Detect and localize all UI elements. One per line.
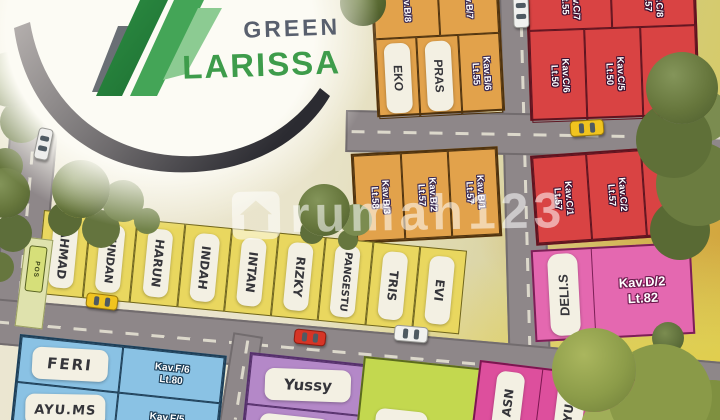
block-b-top: Kav.B/8 Kav.B/7 EKO PRAS Kav.B/6Lt.55 — [371, 0, 505, 117]
owner-sticker: EVI — [424, 255, 455, 325]
lot-deli: DELI.S — [533, 249, 597, 340]
watermark-text: rumah123 — [290, 181, 567, 244]
owner-name: RIZKY — [290, 256, 308, 298]
owner-name: JUNDAN — [102, 233, 120, 284]
lot-rizky: RIZKY — [271, 233, 326, 321]
owner-name: Yussy — [283, 375, 333, 395]
owner-sticker: EKO — [383, 42, 413, 113]
owner-name: INDAH — [195, 245, 213, 291]
owner-name: AYU.MS — [34, 402, 97, 418]
owner-sticker: Yussy — [264, 368, 351, 403]
owner-name: PRAS — [431, 59, 447, 92]
lot-tris: TRIS — [365, 242, 420, 330]
lot-c3: Kav.C/3Lt.58 — [641, 146, 701, 236]
owner-sticker: DELI.S — [547, 253, 581, 336]
lot-label: Kav.F/6Lt.80 — [153, 361, 190, 389]
owner-name: PANGESTU — [337, 251, 354, 312]
lot-label: Kav.C/5Lt.50 — [602, 57, 625, 92]
owner-sticker — [258, 412, 330, 420]
lot-label: Kav.D/2Lt.82 — [618, 274, 666, 308]
owner-sticker: RIZKY — [283, 242, 314, 312]
bush-pink-corner — [652, 322, 684, 354]
lot-pras: PRAS — [417, 35, 462, 117]
block-green — [357, 356, 482, 420]
owner-name: EKO — [390, 65, 405, 91]
siteplan-map: Kav.B/8 Kav.B/7 EKO PRAS Kav.B/6Lt.55 — [0, 0, 720, 420]
car-white-main-road — [393, 325, 428, 344]
owner-name: FERI — [46, 354, 94, 374]
lot-evi: EVI — [412, 246, 467, 334]
lot-b7: Kav.B/7 — [438, 0, 499, 36]
guard-post-label: POS — [32, 260, 41, 277]
tree-cluster-bottom-right — [552, 328, 636, 412]
owner-sticker — [374, 408, 428, 420]
owner-sticker: PRAS — [424, 40, 454, 111]
owner-sticker: TRIS — [377, 251, 408, 321]
owner-sticker: INDAH — [189, 233, 220, 303]
lot-c5: Kav.C/5Lt.50 — [585, 27, 644, 121]
lot-label: Kav.B/6Lt.55 — [469, 56, 493, 91]
owner-sticker: INTAN — [236, 237, 267, 307]
brand-line2: LARISSA — [182, 43, 342, 86]
tree-cluster-right — [646, 52, 718, 124]
car-red-main-road — [293, 328, 326, 346]
block-purple: Yussy — [241, 352, 371, 420]
owner-name: DELI.S — [556, 274, 573, 316]
lot-label: Kav.C/2Lt.57 — [604, 177, 628, 213]
owner-name: ASN — [499, 388, 516, 418]
lot-c7: Kav.C/7Lt.55 — [528, 0, 612, 31]
lot-label: Kav.C/6Lt.50 — [547, 58, 570, 93]
lot-b6: Kav.B/6Lt.55 — [458, 33, 503, 115]
owner-name: HARUN — [148, 238, 167, 288]
owner-sticker: AYU.MS — [25, 393, 106, 420]
car-yellow-right-road — [569, 119, 604, 137]
lot-c8: Kav.C/8Lt.57 — [611, 0, 695, 28]
lot-label: Kav.C/7Lt.55 — [558, 0, 581, 21]
owner-sticker: FERI — [31, 346, 109, 382]
owner-sticker: PANGESTU — [330, 244, 362, 318]
lot-label: Kav.B/8 — [400, 0, 413, 22]
lot-br-1: ASN — [473, 362, 543, 420]
lot-c6: Kav.C/6Lt.50 — [529, 29, 588, 123]
lot-eko: EKO — [375, 37, 420, 119]
owner-name: EVI — [431, 278, 447, 302]
lot-label: Kav.B/7 — [461, 0, 474, 19]
road-centerline — [352, 130, 720, 139]
owner-name: INTAN — [243, 251, 261, 294]
owner-name: TRIS — [384, 270, 401, 302]
lot-label: Kav.C/8Lt.57 — [641, 0, 664, 18]
house-icon — [232, 191, 281, 240]
car-white-top-road — [512, 0, 529, 28]
lot-label: Kav.C/3Lt.58 — [659, 173, 683, 209]
owner-sticker: ASN — [490, 370, 525, 420]
lot-label: Kav.F/5 — [149, 411, 185, 420]
lot-c2: Kav.C/2Lt.57 — [586, 150, 646, 240]
watermark: rumah123 — [232, 181, 567, 245]
lot-pangestu: PANGESTU — [318, 237, 373, 325]
lot-d2: Kav.D/2Lt.82 — [592, 244, 693, 337]
brand-line1: GREEN — [243, 13, 341, 42]
